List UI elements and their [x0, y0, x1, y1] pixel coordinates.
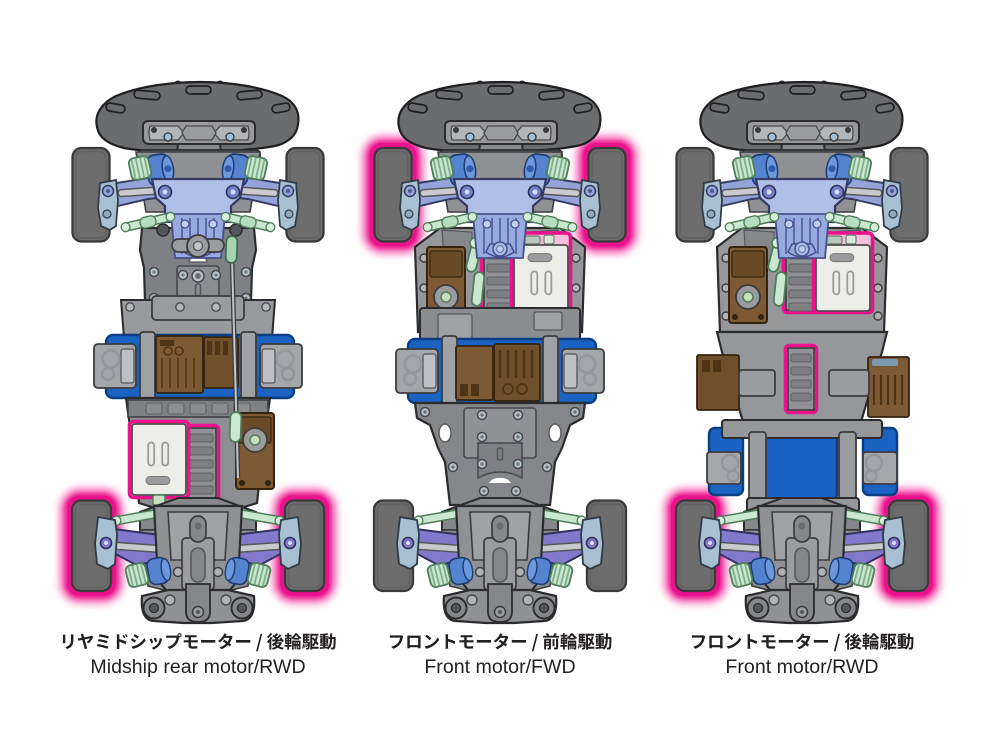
svg-text:Midship rear motor/RWD: Midship rear motor/RWD — [90, 656, 305, 678]
svg-text:Front motor/FWD: Front motor/FWD — [424, 656, 575, 678]
svg-text:Front motor/RWD: Front motor/RWD — [725, 656, 878, 678]
